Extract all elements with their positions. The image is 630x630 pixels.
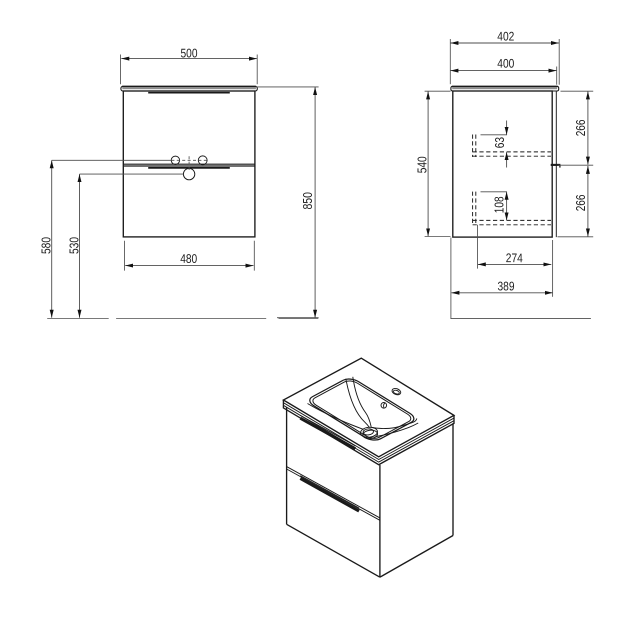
svg-text:850: 850 bbox=[301, 192, 315, 210]
svg-text:580: 580 bbox=[39, 237, 53, 254]
svg-text:274: 274 bbox=[506, 251, 523, 265]
svg-text:108: 108 bbox=[492, 196, 506, 213]
svg-text:540: 540 bbox=[416, 156, 430, 173]
svg-text:389: 389 bbox=[497, 279, 514, 293]
svg-text:63: 63 bbox=[493, 137, 507, 148]
svg-text:266: 266 bbox=[574, 194, 588, 211]
svg-text:500: 500 bbox=[180, 46, 197, 60]
svg-text:402: 402 bbox=[497, 29, 514, 43]
svg-text:480: 480 bbox=[180, 252, 197, 266]
svg-text:400: 400 bbox=[497, 57, 514, 71]
svg-text:266: 266 bbox=[574, 119, 588, 136]
svg-text:530: 530 bbox=[67, 237, 81, 254]
